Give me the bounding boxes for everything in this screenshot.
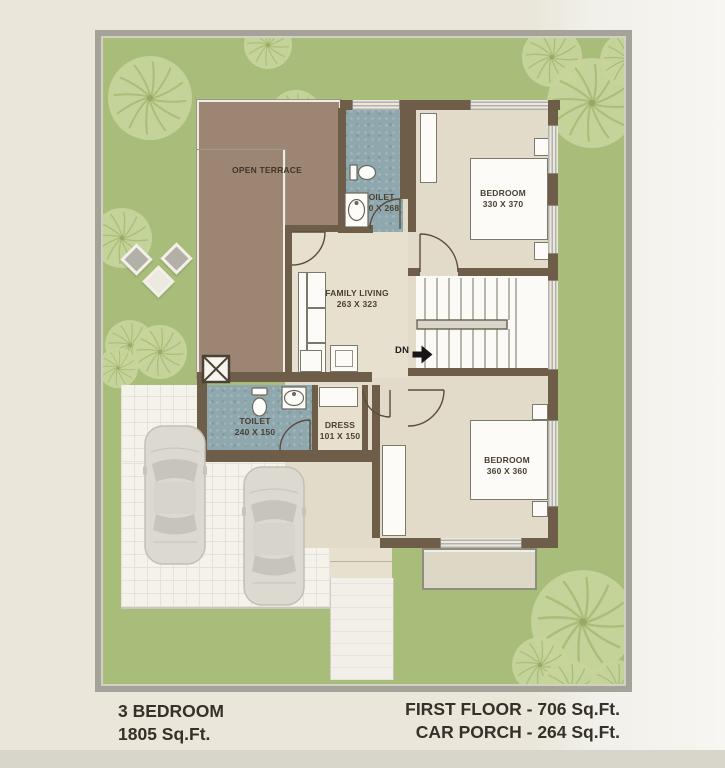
washbasin-icon (282, 387, 306, 409)
bedroom-count-text: 3 BEDROOM (118, 700, 224, 723)
car-porch-area-text: CAR PORCH - 264 Sq.Ft. (405, 721, 620, 744)
dn-arrow-icon (413, 346, 433, 364)
car-icon (143, 426, 207, 564)
project-summary: 3 BEDROOM 1805 Sq.Ft. (118, 700, 224, 746)
bottom-band (0, 750, 725, 768)
first-floor-area-text: FIRST FLOOR - 706 Sq.Ft. (405, 698, 620, 721)
wc-icon (252, 388, 267, 416)
floor-summary: FIRST FLOOR - 706 Sq.Ft. CAR PORCH - 264… (405, 698, 620, 744)
car-icon (242, 467, 306, 605)
shaft-x-box (203, 356, 229, 382)
floor-plan-page: OPEN TERRACE TOILET150 X 268 BEDROOM330 … (0, 0, 725, 768)
stair-rail (417, 320, 507, 329)
site-plan-frame: OPEN TERRACE TOILET150 X 268 BEDROOM330 … (95, 30, 632, 692)
total-area-text: 1805 Sq.Ft. (118, 723, 224, 746)
detail-layer (95, 30, 632, 692)
washbasin-icon (345, 193, 368, 227)
wc-icon (350, 165, 376, 180)
